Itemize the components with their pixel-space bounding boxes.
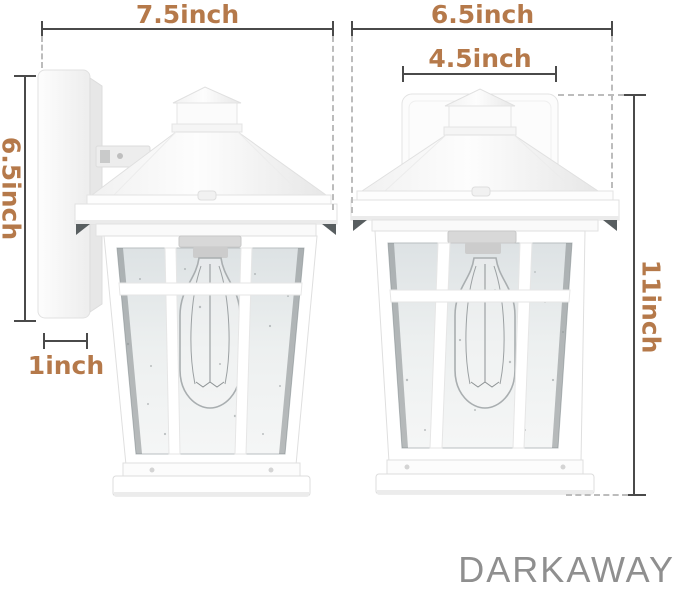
dimension-tick (555, 66, 557, 82)
dim-overall-height-line (633, 95, 635, 495)
lantern-roof (351, 89, 619, 231)
lantern-base (376, 460, 594, 494)
dimension-tick (351, 21, 353, 37)
dim-front-width-line (42, 28, 333, 30)
dimension-tick (622, 94, 646, 96)
dim-side-width-line (352, 28, 613, 30)
dim-backplate-height-line (24, 76, 26, 321)
lantern-front-view-image (30, 64, 340, 500)
extension-line (41, 36, 43, 68)
dimension-tick (14, 75, 36, 77)
dimension-tick (43, 333, 45, 349)
dim-backplate-height-label: 6.5inch (0, 129, 24, 249)
extension-line (611, 36, 613, 188)
dim-front-width-label: 7.5inch (42, 2, 333, 27)
dim-side-width-label: 6.5inch (352, 2, 613, 27)
extension-line (351, 36, 353, 213)
extension-line (332, 36, 334, 210)
dim-backplate-width-line (403, 73, 557, 75)
dim-backplate-width-label: 4.5inch (403, 46, 557, 71)
lantern-body (375, 231, 585, 462)
dim-overall-height-label: 11inch (639, 247, 664, 367)
dim-backplate-depth-line (44, 340, 88, 342)
dimension-tick (332, 21, 334, 37)
lantern-base (113, 463, 310, 496)
dimension-tick (611, 21, 613, 37)
extension-line (558, 94, 624, 96)
extension-line (566, 494, 628, 496)
dimension-tick (86, 333, 88, 349)
dim-backplate-depth-label: 1inch (16, 353, 116, 378)
wall-plate (38, 70, 102, 318)
dimension-tick (41, 21, 43, 37)
lantern-body (104, 236, 317, 465)
dimension-tick (14, 320, 36, 322)
dimension-tick (402, 66, 404, 82)
brand-logo: DARKAWAY (458, 549, 675, 591)
product-dimension-diagram: 7.5inch 6.5inch 4.5inch 6.5inch 1inch 11… (0, 0, 679, 594)
lantern-side-view-image (345, 80, 625, 500)
